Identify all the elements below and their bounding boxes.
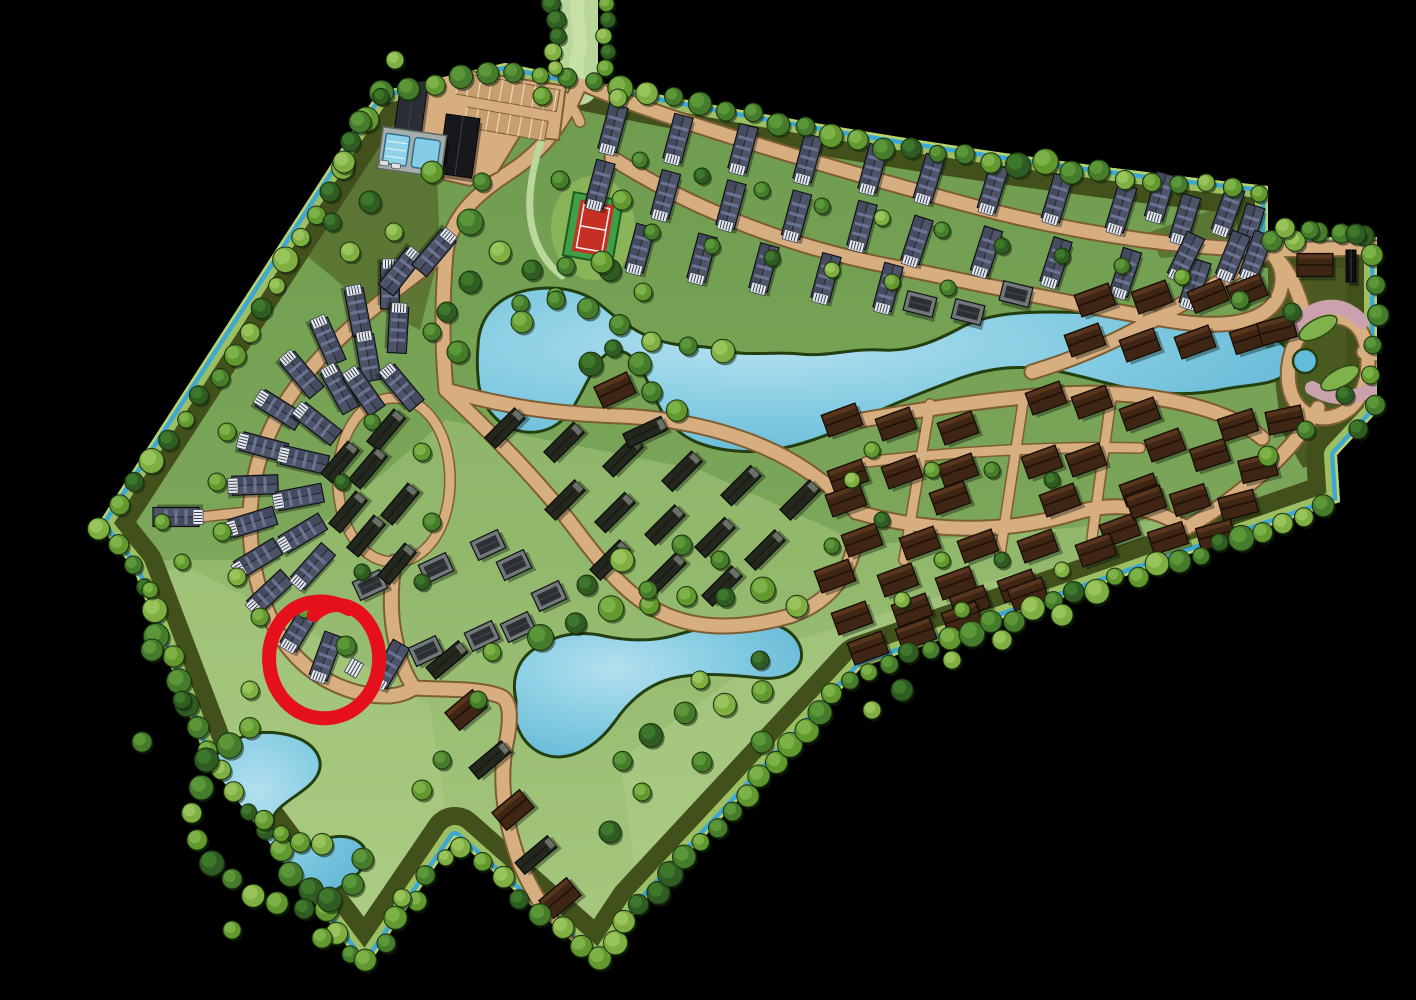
tree-icon	[223, 921, 243, 942]
tree-icon	[199, 851, 226, 878]
tree-icon	[600, 12, 618, 30]
parked-car	[391, 163, 401, 169]
tree-icon	[386, 51, 406, 72]
lodge-slate[interactable]	[228, 475, 279, 499]
tree-icon	[891, 679, 915, 704]
tree-icon	[601, 44, 618, 62]
entrance-corridor	[576, 0, 580, 86]
tree-icon	[692, 833, 711, 853]
tree-icon	[132, 732, 154, 755]
tree-icon	[992, 630, 1014, 653]
tree-icon	[596, 28, 614, 47]
tree-icon	[708, 819, 729, 841]
tree-icon	[182, 803, 204, 826]
parked-car	[379, 160, 389, 166]
tree-icon	[242, 884, 267, 910]
tree-icon	[841, 672, 860, 692]
tree-icon	[266, 892, 290, 917]
map-canvas[interactable]	[0, 0, 1416, 1000]
tree-icon	[860, 664, 879, 683]
tree-icon	[1051, 604, 1075, 629]
lodge-brown[interactable]	[1297, 254, 1336, 281]
tree-icon	[723, 802, 744, 823]
tree-icon	[222, 869, 244, 891]
entrance-bar	[1346, 250, 1359, 286]
tree-icon	[943, 651, 963, 672]
tree-icon	[189, 775, 216, 802]
tree-icon	[880, 655, 900, 676]
tree-icon	[377, 934, 398, 955]
entrance-pond	[1293, 349, 1317, 373]
holiday-park-site-plan	[0, 0, 1416, 1000]
tree-icon	[922, 641, 941, 661]
tree-icon	[1084, 579, 1111, 606]
lodge-slate[interactable]	[384, 302, 409, 353]
tree-icon	[863, 701, 883, 722]
tree-icon	[187, 830, 209, 853]
map-container	[0, 0, 1416, 1000]
